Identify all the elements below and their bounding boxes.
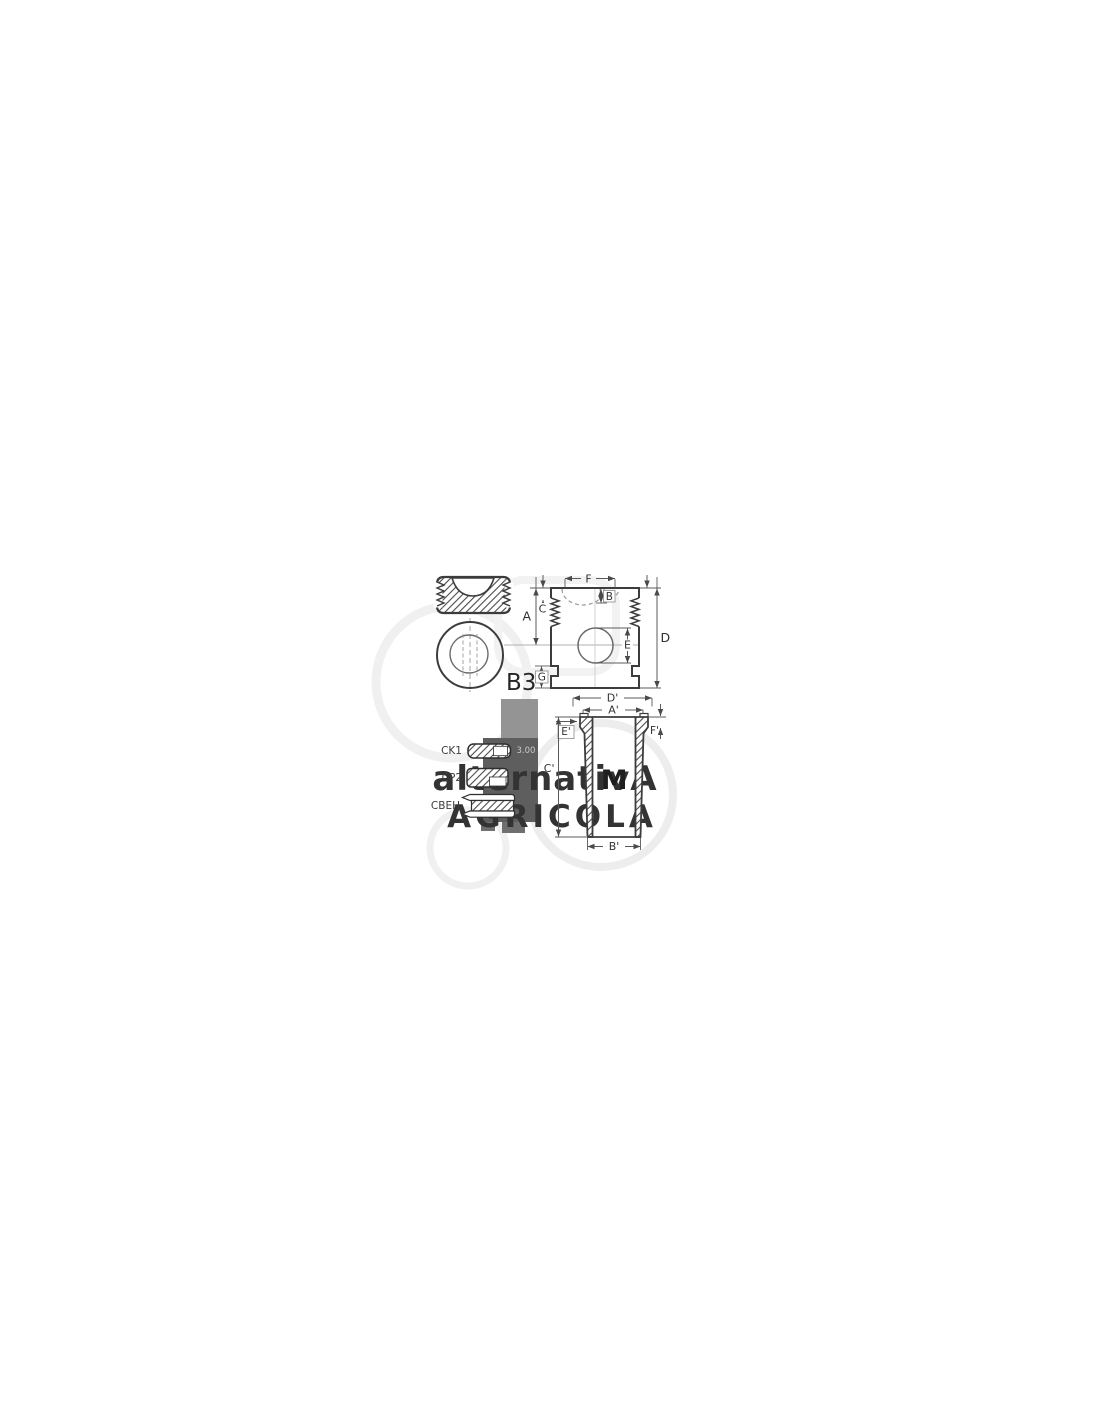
dim-label-g: G: [538, 672, 546, 684]
ring-cbeh-bottom-rail: [463, 811, 515, 817]
pin-bore: [578, 628, 613, 663]
piston-liner-technical-drawing: alternativA AGRICOLA alternativA AGRICOL…: [0, 0, 1100, 1422]
dim-label-e-prime: E': [561, 726, 571, 738]
dim-label-c-prime: C': [544, 762, 555, 775]
liner-type-label: M: [601, 765, 628, 796]
ring-label-cp2: CP2: [442, 772, 462, 784]
dim-label-f: F: [585, 573, 591, 586]
dim-label-a-prime: A': [608, 704, 619, 717]
dim-label-c: C: [539, 603, 547, 616]
dim-label-b: B: [606, 591, 613, 603]
piston-cross-section: [434, 577, 514, 613]
ring-value-ck1: 3.00: [517, 746, 536, 756]
ring-label-cbeh: CBEH: [431, 800, 460, 812]
ring-cbeh-expander: [472, 801, 514, 812]
dim-label-f-prime: F': [650, 725, 659, 737]
ring-label-ck1: CK1: [441, 745, 462, 757]
ring-cbeh-top-rail: [463, 795, 515, 801]
product-drawing-page: alternativA AGRICOLA alternativA AGRICOL…: [0, 0, 1100, 1422]
dim-label-e: E: [624, 639, 631, 652]
watermark-cab-icon: [498, 580, 616, 672]
piston-bowl-outline: [450, 635, 488, 673]
dim-label-b-prime: B': [609, 840, 620, 853]
piston-type-label: B3: [506, 670, 536, 696]
dim-label-a: A: [522, 609, 531, 624]
dim-label-d: D: [661, 630, 671, 645]
